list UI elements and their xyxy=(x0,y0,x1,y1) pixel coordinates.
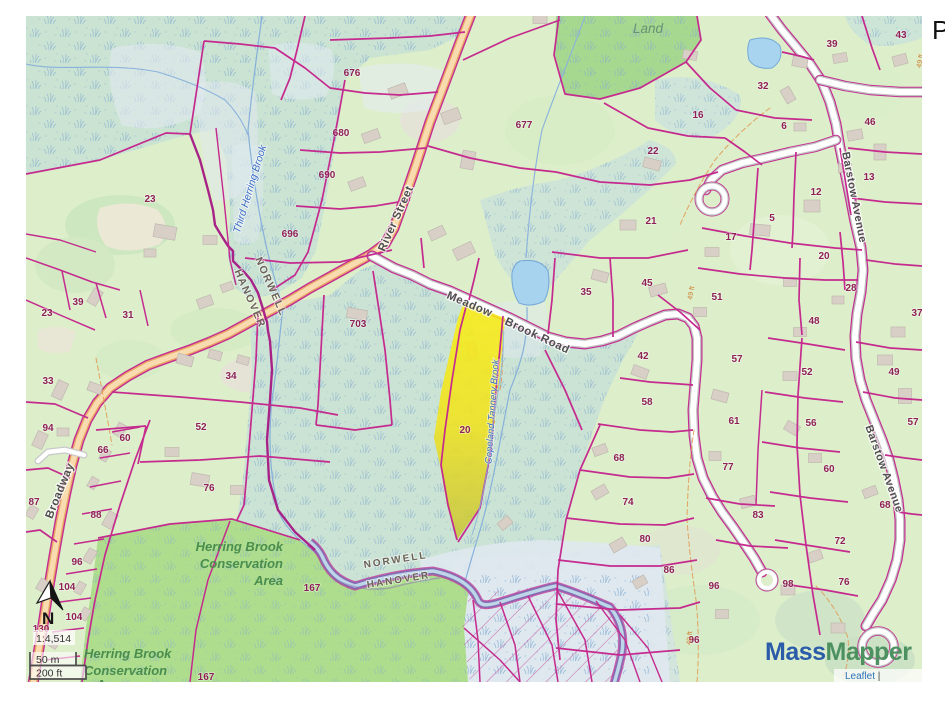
svg-text:76: 76 xyxy=(838,577,850,588)
svg-text:52: 52 xyxy=(801,367,813,378)
svg-text:676: 676 xyxy=(344,68,361,79)
svg-text:167: 167 xyxy=(198,672,215,683)
svg-text:34: 34 xyxy=(225,371,237,382)
svg-text:12: 12 xyxy=(810,187,822,198)
svg-text:6: 6 xyxy=(781,121,787,132)
svg-text:P: P xyxy=(932,15,945,45)
svg-text:80: 80 xyxy=(639,534,651,545)
svg-text:68: 68 xyxy=(879,500,891,511)
svg-text:13: 13 xyxy=(863,172,875,183)
svg-text:Herring Brook: Herring Brook xyxy=(84,646,172,661)
svg-text:Area: Area xyxy=(253,573,283,588)
svg-text:57: 57 xyxy=(907,417,919,428)
svg-text:167: 167 xyxy=(304,583,321,594)
svg-text:35: 35 xyxy=(580,287,592,298)
svg-text:58: 58 xyxy=(641,397,653,408)
svg-text:23: 23 xyxy=(41,308,53,319)
svg-text:45: 45 xyxy=(641,278,653,289)
svg-text:Leaflet |: Leaflet | xyxy=(845,671,880,682)
svg-text:200 ft: 200 ft xyxy=(36,668,62,680)
svg-text:51: 51 xyxy=(711,292,723,303)
svg-text:60: 60 xyxy=(119,433,131,444)
svg-text:74: 74 xyxy=(622,497,634,508)
svg-text:86: 86 xyxy=(663,565,675,576)
svg-text:104: 104 xyxy=(66,612,83,623)
svg-text:42: 42 xyxy=(637,351,649,362)
svg-text:76: 76 xyxy=(203,483,215,494)
svg-text:677: 677 xyxy=(516,120,533,131)
svg-text:72: 72 xyxy=(834,536,846,547)
svg-text:50 m: 50 m xyxy=(36,654,60,666)
svg-text:20: 20 xyxy=(818,251,830,262)
svg-text:56: 56 xyxy=(805,418,817,429)
svg-text:39: 39 xyxy=(72,297,84,308)
svg-text:690: 690 xyxy=(319,170,336,181)
svg-text:17: 17 xyxy=(725,232,737,243)
svg-text:28: 28 xyxy=(845,283,857,294)
svg-text:Conservation: Conservation xyxy=(200,556,283,571)
svg-text:5: 5 xyxy=(769,213,775,224)
svg-text:Herring Brook: Herring Brook xyxy=(196,539,284,554)
svg-text:96: 96 xyxy=(71,557,83,568)
svg-text:703: 703 xyxy=(350,319,367,330)
svg-text:MassMapper: MassMapper xyxy=(765,638,912,666)
svg-text:22: 22 xyxy=(647,146,659,157)
svg-text:696: 696 xyxy=(282,229,299,240)
svg-text:39: 39 xyxy=(826,39,838,50)
svg-text:43: 43 xyxy=(895,30,907,41)
svg-text:N: N xyxy=(42,609,54,628)
svg-text:94: 94 xyxy=(42,423,54,434)
svg-text:83: 83 xyxy=(752,510,764,521)
svg-text:61: 61 xyxy=(728,416,740,427)
svg-text:32: 32 xyxy=(757,81,769,92)
svg-text:Conservation: Conservation xyxy=(84,663,167,678)
svg-text:31: 31 xyxy=(122,310,134,321)
svg-text:98: 98 xyxy=(782,579,794,590)
svg-text:52: 52 xyxy=(195,422,207,433)
svg-text:49: 49 xyxy=(888,367,900,378)
svg-text:Land: Land xyxy=(633,21,664,36)
svg-text:46: 46 xyxy=(864,117,876,128)
svg-text:49 ft: 49 ft xyxy=(686,631,694,645)
svg-text:21: 21 xyxy=(645,216,657,227)
svg-text:87: 87 xyxy=(28,497,40,508)
svg-text:680: 680 xyxy=(333,128,350,139)
svg-text:16: 16 xyxy=(692,110,704,121)
svg-text:66: 66 xyxy=(97,445,109,456)
svg-text:33: 33 xyxy=(42,376,54,387)
svg-text:68: 68 xyxy=(613,453,625,464)
svg-text:1:4,514: 1:4,514 xyxy=(36,633,71,645)
svg-text:37: 37 xyxy=(911,308,923,319)
svg-text:23: 23 xyxy=(144,194,156,205)
svg-text:77: 77 xyxy=(722,462,734,473)
svg-text:20: 20 xyxy=(459,425,471,436)
svg-text:60: 60 xyxy=(823,464,835,475)
svg-text:88: 88 xyxy=(90,510,102,521)
svg-text:96: 96 xyxy=(708,581,720,592)
svg-text:57: 57 xyxy=(731,354,743,365)
svg-text:48: 48 xyxy=(808,316,820,327)
svg-text:104: 104 xyxy=(59,582,76,593)
